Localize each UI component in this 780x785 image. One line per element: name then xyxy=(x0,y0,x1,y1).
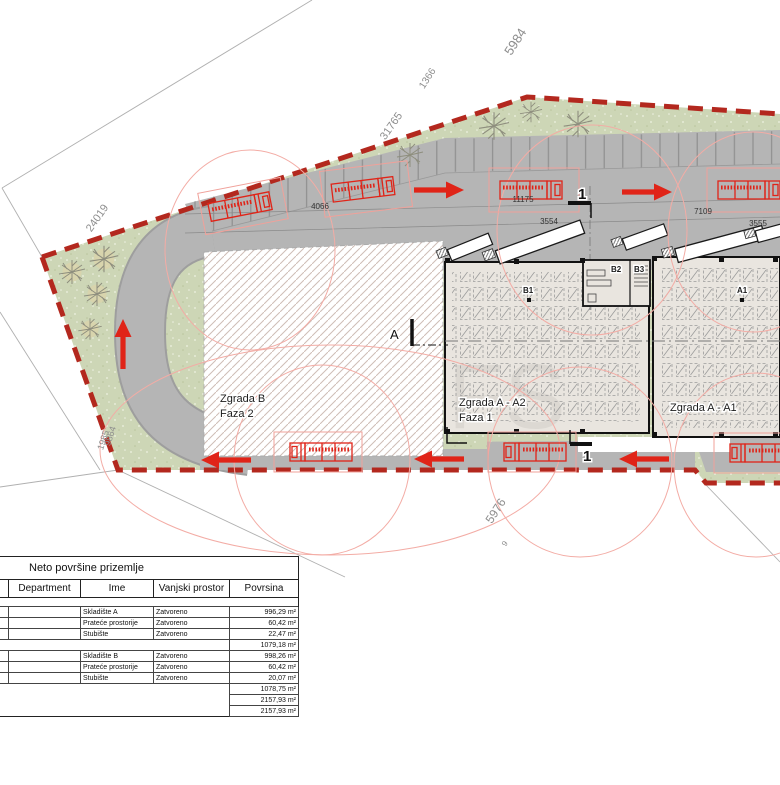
cell-vanjski: Zatvoreno xyxy=(154,618,230,629)
subtotal-row-b: 1078,75 m² xyxy=(0,684,299,695)
table-row: A Skladište A Zatvoreno 996,29 m² xyxy=(0,607,299,618)
subtotal-a-value: 1079,18 m² xyxy=(230,640,299,651)
net-areas-table-grid: Neto površine prizemlje Department Ime V… xyxy=(0,556,299,717)
dim-1366: 1366 xyxy=(417,66,439,91)
room-b3-label: B3 xyxy=(634,265,645,274)
cell-department xyxy=(9,618,81,629)
table-row: B Skladište B Zatvoreno 998,26 m² xyxy=(0,651,299,662)
total-row: 2157,93 m² xyxy=(0,695,299,706)
dim-11175: 11175 xyxy=(512,195,534,204)
faza-1-label: Faza 1 xyxy=(459,412,493,424)
col-header-ime: Ime xyxy=(81,580,154,598)
section-1-bottom-label: 1 xyxy=(583,448,591,465)
col-header-povrsina: Povrsina xyxy=(230,580,299,598)
cell-department xyxy=(9,662,81,673)
subtotal-b-value: 1078,75 m² xyxy=(230,684,299,695)
grand-total-row: 2157,93 m² xyxy=(0,706,299,717)
cell-dept: A xyxy=(0,629,9,640)
cell-dept: B xyxy=(0,673,9,684)
room-b2-label: B2 xyxy=(611,265,622,274)
cell-povrsina: 998,26 m² xyxy=(230,651,299,662)
dim-5976: 5976 xyxy=(483,496,509,526)
cell-povrsina: 60,42 m² xyxy=(230,662,299,673)
dim-7109: 7109 xyxy=(694,207,712,216)
cell-dept: B xyxy=(0,662,9,673)
cell-vanjski: Zatvoreno xyxy=(154,651,230,662)
table-title: Neto površine prizemlje xyxy=(0,557,299,580)
cell-ime: Skladište B xyxy=(81,651,154,662)
cell-department xyxy=(9,651,81,662)
table-row: A Prateće prostorije Zatvoreno 60,42 m² xyxy=(0,618,299,629)
dim-5984: 5984 xyxy=(501,25,529,57)
zgrada-a2-label: Zgrada A - A2 xyxy=(459,397,526,409)
cell-ime: Stubište xyxy=(81,673,154,684)
table-gap-row xyxy=(0,598,299,607)
room-b1-label: B1 xyxy=(523,286,534,295)
room-a1-label: A1 xyxy=(737,286,748,295)
cell-povrsina: 60,42 m² xyxy=(230,618,299,629)
section-1-top-label: 1 xyxy=(578,186,586,203)
cell-vanjski: Zatvoreno xyxy=(154,673,230,684)
table-row: B Stubište Zatvoreno 20,07 m² xyxy=(0,673,299,684)
subtotal-row-a: 1079,18 m² xyxy=(0,640,299,651)
dim-24019: 24019 xyxy=(84,202,111,234)
cell-ime: Prateće prostorije xyxy=(81,618,154,629)
dim-9: 9 xyxy=(500,539,510,548)
section-a-label: A xyxy=(390,327,399,342)
net-areas-table: Neto površine prizemlje Department Ime V… xyxy=(0,556,298,717)
cell-dept: A xyxy=(0,607,9,618)
cell-vanjski: Zatvoreno xyxy=(154,662,230,673)
dim-4066: 4066 xyxy=(311,202,329,211)
faza-2-label: Faza 2 xyxy=(220,408,254,420)
cell-dept: B xyxy=(0,651,9,662)
col-header-department: Department xyxy=(9,580,81,598)
cell-vanjski: Zatvoreno xyxy=(154,629,230,640)
cell-povrsina: 996,29 m² xyxy=(230,607,299,618)
cell-vanjski: Zatvoreno xyxy=(154,607,230,618)
dim-3555: 3555 xyxy=(749,219,767,228)
zgrada-b-label: Zgrada B xyxy=(220,393,265,405)
cell-ime: Stubište xyxy=(81,629,154,640)
dim-3554: 3554 xyxy=(540,217,558,226)
grand-total-value: 2157,93 m² xyxy=(230,706,299,717)
building-b-faza2-hatched xyxy=(204,241,443,456)
zgrada-a1-label: Zgrada A - A1 xyxy=(670,402,737,414)
table-row: B Prateće prostorije Zatvoreno 60,42 m² xyxy=(0,662,299,673)
col-header-blank xyxy=(0,580,9,598)
col-header-vanjski-prostor: Vanjski prostor xyxy=(154,580,230,598)
cell-povrsina: 20,07 m² xyxy=(230,673,299,684)
cell-ime: Skladište A xyxy=(81,607,154,618)
cell-ime: Prateće prostorije xyxy=(81,662,154,673)
total-value: 2157,93 m² xyxy=(230,695,299,706)
cell-department xyxy=(9,629,81,640)
cell-department xyxy=(9,607,81,618)
table-row: A Stubište Zatvoreno 22,47 m² xyxy=(0,629,299,640)
dim-31765: 31765 xyxy=(378,110,405,142)
cell-dept: A xyxy=(0,618,9,629)
cell-povrsina: 22,47 m² xyxy=(230,629,299,640)
cell-department xyxy=(9,673,81,684)
